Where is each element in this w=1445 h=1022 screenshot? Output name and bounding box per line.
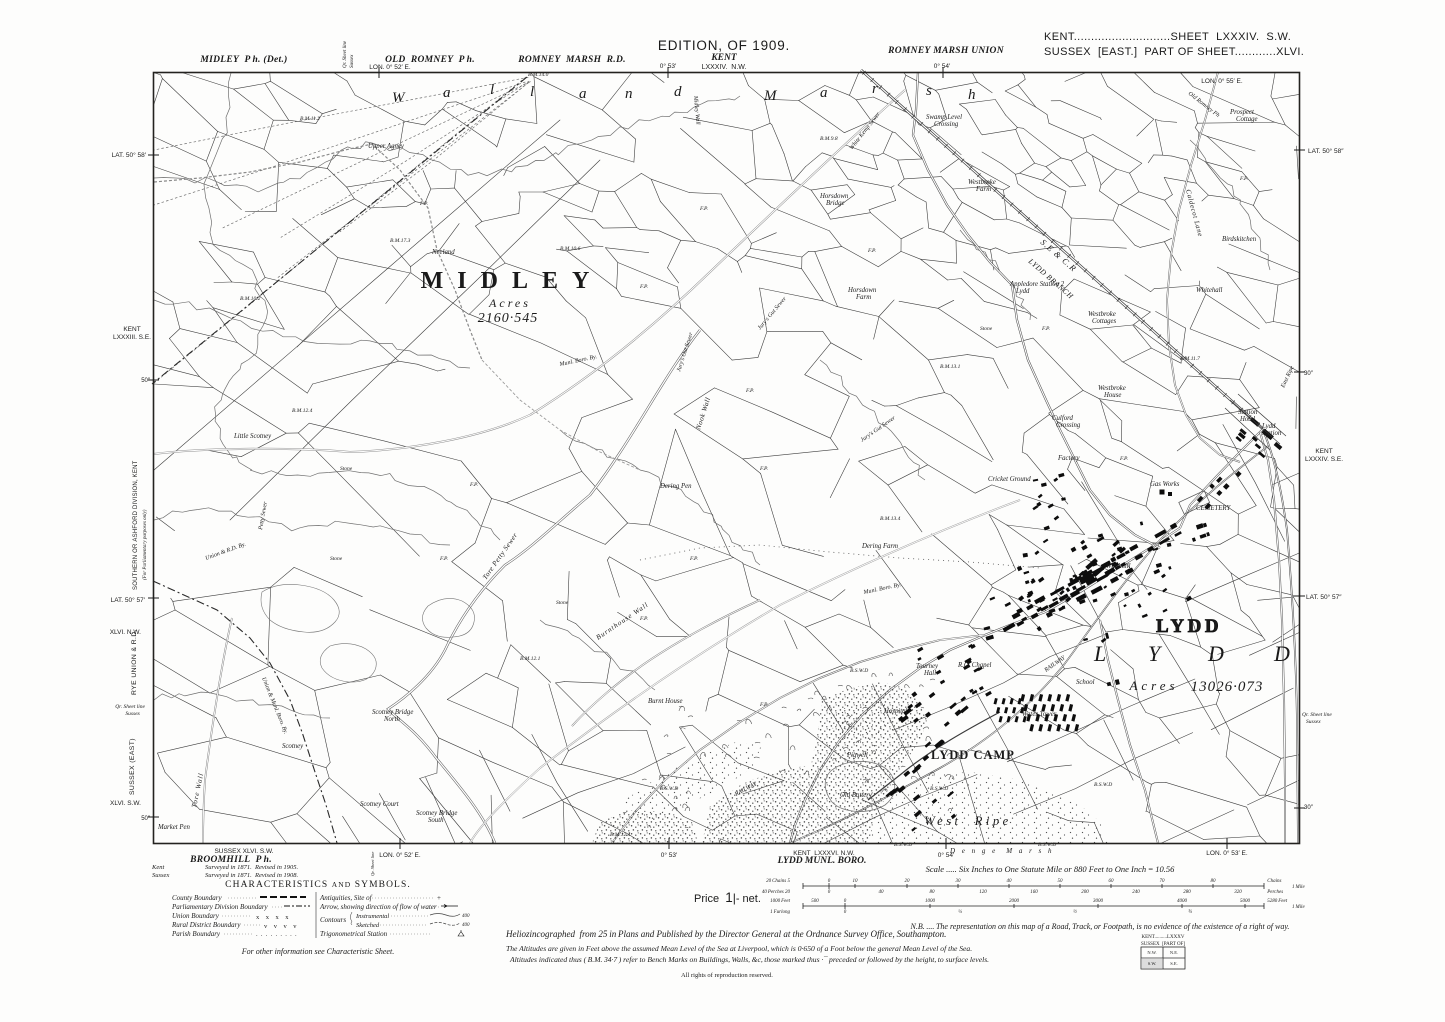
svg-text:F.P.: F.P. — [689, 556, 698, 562]
svg-text:30″: 30″ — [1304, 371, 1314, 377]
svg-text:Sussex: Sussex — [152, 872, 169, 879]
svg-text:MIDLEY: MIDLEY — [421, 268, 604, 294]
svg-text:For other information see Char: For other information see Characteristic… — [241, 947, 394, 956]
svg-text:LYDD CAMP: LYDD CAMP — [931, 748, 1015, 762]
svg-text:Prospect: Prospect — [1229, 109, 1255, 116]
svg-text:D: D — [1207, 641, 1224, 666]
svg-text:S.E.: S.E. — [1170, 961, 1178, 966]
svg-text:B.M.13.4: B.M.13.4 — [880, 515, 901, 522]
svg-text:60: 60 — [1109, 879, 1115, 884]
svg-text:Kent: Kent — [151, 864, 164, 871]
svg-text:B.M.12.4: B.M.12.4 — [610, 831, 631, 838]
svg-text:Sussex: Sussex — [1306, 719, 1321, 725]
svg-text:Union Boundary: Union Boundary — [172, 912, 220, 920]
svg-text:Trigonometrical Station: Trigonometrical Station — [320, 930, 388, 938]
svg-text:Cricket Ground: Cricket Ground — [988, 476, 1031, 483]
svg-text:Station: Station — [1238, 409, 1258, 416]
svg-text:Little Scotney: Little Scotney — [233, 433, 272, 440]
svg-text:SUSSEX [EAST.] PART OF SHEET: SUSSEX [EAST.] PART OF SHEET............… — [1044, 46, 1304, 58]
svg-text:1 Mile: 1 Mile — [1292, 905, 1305, 910]
svg-text:LYDD: LYDD — [1156, 616, 1222, 637]
svg-text:D e n g e M a r s h: D e n g e M a r s h — [949, 847, 1054, 855]
svg-text:B.S.W.D: B.S.W.D — [660, 786, 678, 792]
svg-text:Westbroke: Westbroke — [1088, 311, 1116, 318]
svg-text:Acres: Acres — [1128, 678, 1178, 693]
svg-text:B.M.11.2: B.M.11.2 — [300, 116, 320, 122]
svg-text:Parliamentary Division Boundar: Parliamentary Division Boundary — [171, 903, 269, 911]
svg-text:Stone: Stone — [330, 556, 343, 562]
svg-text:¾: ¾ — [1188, 910, 1192, 915]
svg-text:Sussex: Sussex — [350, 54, 355, 68]
svg-text:B.M.10.2: B.M.10.2 — [240, 296, 261, 302]
svg-text:Lydd: Lydd — [1261, 423, 1276, 430]
svg-text:MIDLEY P h. (Det.): MIDLEY P h. (Det.) — [199, 54, 287, 65]
svg-text:F.P.: F.P. — [759, 702, 768, 708]
svg-text:Perches: Perches — [1266, 890, 1283, 895]
svg-text:LAT. 50° 57″: LAT. 50° 57″ — [1306, 593, 1342, 601]
svg-text:13026·073: 13026·073 — [1191, 679, 1264, 695]
svg-text:KENT..........LXXXV: KENT..........LXXXV — [1142, 935, 1185, 940]
svg-text:Scotney Bridge: Scotney Bridge — [416, 810, 457, 817]
svg-text:h: h — [968, 87, 976, 103]
svg-text:Hall: Hall — [923, 670, 936, 677]
svg-text:M: M — [763, 88, 778, 104]
svg-text:Stone: Stone — [980, 326, 993, 332]
svg-text:B.M.12.1: B.M.12.1 — [520, 656, 541, 662]
svg-text:County Boundary: County Boundary — [172, 894, 222, 902]
svg-text:Price 1|- net.: Price 1|- net. — [694, 890, 761, 905]
svg-text:B.S.W.D: B.S.W.D — [850, 668, 868, 674]
svg-text:West Ripe: West Ripe — [924, 814, 1011, 828]
svg-text:Surveyed in 1871. Revised in: Surveyed in 1871. Revised in 1908. — [205, 872, 299, 879]
svg-text:Altitudes indicated thus ( B.M: Altitudes indicated thus ( B.M. 34·7 ) r… — [509, 955, 989, 964]
svg-text:Pigwell: Pigwell — [846, 752, 868, 759]
svg-text:Qr. Sheet line: Qr. Sheet line — [343, 40, 348, 68]
svg-text:a: a — [443, 85, 451, 101]
svg-text:D: D — [1273, 641, 1290, 666]
svg-text:South: South — [428, 817, 444, 824]
svg-text:0° 54′: 0° 54′ — [934, 62, 951, 70]
svg-text:Scotney Bridge: Scotney Bridge — [372, 709, 413, 716]
svg-text:F.P.: F.P. — [759, 466, 768, 472]
svg-text:Qr. Sheet line: Qr. Sheet line — [115, 704, 145, 710]
svg-text:Qr. Sheet line: Qr. Sheet line — [1302, 712, 1332, 718]
svg-text:LON. 0° 53′ E.: LON. 0° 53′ E. — [1206, 849, 1248, 857]
svg-text:B.S.W.D: B.S.W.D — [1094, 782, 1112, 788]
svg-text:1 Furlong: 1 Furlong — [770, 910, 790, 915]
svg-text:400: 400 — [462, 914, 470, 919]
svg-text:B.M.10.6: B.M.10.6 — [560, 246, 581, 252]
svg-text:400: 400 — [462, 923, 470, 928]
svg-text:Antiquities, Site of: Antiquities, Site of — [319, 894, 373, 902]
svg-text:Cottages: Cottages — [1092, 318, 1117, 325]
svg-text:LON. 0° 55′ E.: LON. 0° 55′ E. — [1201, 77, 1243, 85]
svg-text:LXXXIV. S.E.: LXXXIV. S.E. — [1305, 456, 1343, 463]
svg-text:SUSSEX [PART OF]: SUSSEX [PART OF] — [1141, 942, 1185, 947]
svg-text:Factory: Factory — [1057, 455, 1080, 462]
svg-text:North: North — [383, 716, 400, 723]
svg-text:x x x x: x x x x — [256, 914, 289, 921]
svg-text:F.P.: F.P. — [469, 482, 478, 488]
svg-text:All rights of reproduction res: All rights of reproduction reserved. — [681, 972, 773, 979]
svg-text:Sketched: Sketched — [356, 922, 380, 929]
svg-text:Tourney: Tourney — [916, 663, 939, 670]
svg-text:4000: 4000 — [1177, 899, 1188, 904]
svg-text:Contours: Contours — [320, 916, 346, 924]
svg-text:Surveyed in 1871. Revised in: Surveyed in 1871. Revised in 1905. — [205, 864, 299, 871]
svg-text:Crossing: Crossing — [934, 121, 959, 128]
svg-text:CEMETERY: CEMETERY — [1196, 505, 1231, 512]
svg-text:N.E.: N.E. — [1170, 950, 1178, 955]
svg-text:2000: 2000 — [1009, 899, 1020, 904]
svg-text:Bridge: Bridge — [826, 200, 845, 207]
svg-text:10: 10 — [853, 879, 859, 884]
svg-text:F.P.: F.P. — [1041, 326, 1050, 332]
svg-text:School: School — [1076, 679, 1095, 686]
svg-text:Heliozincographed from 25 in: Heliozincographed from 25 in Plans and P… — [505, 929, 946, 939]
svg-text:Acres: Acres — [488, 296, 531, 310]
svg-text:r: r — [872, 81, 878, 97]
svg-text:L: L — [1093, 641, 1106, 666]
svg-text:Birdskitchen: Birdskitchen — [1222, 236, 1257, 243]
svg-text:Horsdown: Horsdown — [847, 287, 877, 294]
svg-text:Parish Boundary: Parish Boundary — [171, 930, 221, 938]
svg-text:F.P.: F.P. — [639, 616, 648, 622]
svg-text:LAT. 50° 58″: LAT. 50° 58″ — [1308, 147, 1344, 155]
svg-text:Rural District Boundary: Rural District Boundary — [171, 921, 241, 929]
svg-text:30: 30 — [956, 879, 962, 884]
svg-text:LAT. 50° 57′: LAT. 50° 57′ — [111, 596, 146, 604]
svg-text:KENT: KENT — [1315, 448, 1332, 455]
svg-text:50: 50 — [1058, 879, 1064, 884]
svg-text:Upper Agney: Upper Agney — [368, 143, 405, 150]
svg-text:LON. 0° 52′ E.: LON. 0° 52′ E. — [379, 851, 421, 859]
svg-text:240: 240 — [1132, 890, 1140, 895]
svg-text:Gas Works: Gas Works — [1150, 481, 1180, 488]
svg-text:v v v v: v v v v — [264, 923, 297, 930]
svg-text:Stone: Stone — [556, 600, 569, 606]
svg-text:50″: 50″ — [141, 816, 151, 822]
svg-text:Westbroke: Westbroke — [968, 179, 996, 186]
svg-text:The Altitudes are given in Fee: The Altitudes are given in Feet above th… — [506, 944, 972, 953]
svg-text:Water Tower: Water Tower — [1022, 711, 1057, 718]
svg-text:LXXXIV. N.W.: LXXXIV. N.W. — [702, 64, 747, 71]
svg-text:RYE UNION & R.D.: RYE UNION & R.D. — [131, 629, 138, 695]
svg-text:0° 53′: 0° 53′ — [661, 851, 678, 859]
svg-text:70: 70 — [1160, 879, 1166, 884]
svg-text:EDITION, OF 1909.: EDITION, OF 1909. — [658, 38, 790, 53]
svg-text:R.C. Chapel: R.C. Chapel — [957, 662, 992, 669]
svg-text:Scotney Court: Scotney Court — [360, 801, 400, 808]
svg-text:SUSSEX (EAST): SUSSEX (EAST) — [129, 738, 136, 795]
svg-text:Crossing: Crossing — [1056, 422, 1081, 429]
svg-text:Neeland: Neeland — [431, 249, 455, 256]
svg-text:ROMNEY MARSH R.D.: ROMNEY MARSH R.D. — [517, 55, 626, 65]
svg-text:F.P.: F.P. — [745, 388, 754, 394]
svg-text:120: 120 — [979, 890, 987, 895]
svg-text:F.P.: F.P. — [1239, 176, 1248, 182]
svg-text:KENT: KENT — [710, 53, 738, 63]
svg-text:Farm: Farm — [855, 294, 871, 301]
svg-text:40: 40 — [1007, 879, 1013, 884]
svg-text:a: a — [820, 85, 828, 101]
svg-text:LYDD MUNL. BORO.: LYDD MUNL. BORO. — [777, 856, 867, 866]
svg-text:ROMNEY MARSH UNION: ROMNEY MARSH UNION — [887, 46, 1005, 56]
svg-text:s: s — [926, 83, 932, 99]
svg-text:0° 53′: 0° 53′ — [660, 62, 677, 70]
svg-text:Whitehall: Whitehall — [1196, 287, 1223, 294]
svg-text:Dering Pen: Dering Pen — [659, 483, 692, 490]
svg-text:320: 320 — [1234, 890, 1242, 895]
svg-text:F.P.: F.P. — [419, 201, 428, 207]
svg-text:Scotney: Scotney — [282, 743, 304, 750]
svg-text:F.P.: F.P. — [1119, 456, 1128, 462]
svg-text:. . . . . . . . .: . . . . . . . . . — [256, 931, 297, 938]
svg-text:S.W.: S.W. — [1148, 961, 1157, 966]
svg-text:n: n — [625, 86, 633, 102]
svg-text:House: House — [1103, 392, 1121, 399]
svg-text:B.M.17.3: B.M.17.3 — [390, 238, 411, 244]
svg-text:Culford: Culford — [1052, 415, 1073, 422]
svg-text:5000: 5000 — [1240, 899, 1251, 904]
svg-text:F.P.: F.P. — [867, 248, 876, 254]
svg-text:B.M.11.7: B.M.11.7 — [1180, 356, 1200, 362]
svg-text:Farm: Farm — [975, 186, 991, 193]
svg-text:B.S.W.D: B.S.W.D — [930, 786, 948, 792]
svg-text:20: 20 — [905, 879, 911, 884]
svg-text:KENT: KENT — [123, 326, 140, 333]
svg-text:50″: 50″ — [141, 378, 151, 384]
svg-text:Instrumental: Instrumental — [355, 913, 389, 920]
svg-text:200: 200 — [1081, 890, 1089, 895]
svg-text:280: 280 — [1183, 890, 1191, 895]
svg-text:40: 40 — [879, 890, 885, 895]
svg-text:30″: 30″ — [1304, 805, 1314, 811]
svg-text:N.W.: N.W. — [1147, 950, 1156, 955]
svg-text:Chains: Chains — [1266, 879, 1281, 884]
svg-text:SUSSEX XLVI. S.W.: SUSSEX XLVI. S.W. — [214, 848, 273, 855]
svg-text:F.P.: F.P. — [699, 206, 708, 212]
svg-text:Market Pen: Market Pen — [157, 824, 190, 831]
svg-text:B.M.9.8: B.M.9.8 — [820, 136, 838, 142]
svg-text:Old Battery: Old Battery — [840, 792, 873, 799]
svg-text:¼: ¼ — [958, 910, 962, 915]
svg-text:1000 Feet: 1000 Feet — [770, 899, 790, 904]
svg-text:Lydd: Lydd — [1015, 288, 1030, 295]
svg-text:l: l — [530, 84, 534, 100]
svg-text:XLVI. S.W.: XLVI. S.W. — [110, 800, 141, 807]
svg-text:Windmill: Windmill — [1106, 563, 1131, 570]
svg-text:LXXXIII. S.E.: LXXXIII. S.E. — [113, 334, 151, 341]
svg-text:3000: 3000 — [1093, 899, 1104, 904]
svg-text:W: W — [392, 90, 406, 106]
svg-text:(For Parliamentary purposes on: (For Parliamentary purposes only) — [143, 509, 148, 580]
svg-text:LAT. 50° 58′: LAT. 50° 58′ — [112, 151, 147, 159]
svg-text:Burnt House: Burnt House — [648, 698, 683, 705]
svg-text:Westbroke: Westbroke — [1098, 385, 1126, 392]
svg-text:Qr. Sheet line: Qr. Sheet line — [370, 852, 375, 876]
svg-text:1000: 1000 — [925, 899, 936, 904]
svg-text:80: 80 — [930, 890, 936, 895]
svg-text:Hospital: Hospital — [883, 708, 908, 715]
svg-text:F.P.: F.P. — [639, 284, 648, 290]
svg-text:160: 160 — [1030, 890, 1038, 895]
svg-text:1 Mile: 1 Mile — [1292, 885, 1305, 890]
svg-text:500: 500 — [811, 899, 819, 904]
svg-text:+: + — [437, 894, 441, 902]
svg-text:40 Perches 20: 40 Perches 20 — [762, 890, 791, 895]
svg-text:½: ½ — [1073, 910, 1077, 915]
svg-text:l: l — [490, 82, 494, 98]
svg-text:Horsdown: Horsdown — [819, 193, 849, 200]
svg-text:N.B. .... The representation o: N.B. .... The representation on this map… — [910, 922, 1290, 931]
svg-text:Scale ..... Six Inches to One: Scale ..... Six Inches to One Statute Mi… — [926, 864, 1175, 874]
svg-text:B.M.12.4: B.M.12.4 — [292, 407, 313, 414]
svg-text:B.M.13.1: B.M.13.1 — [940, 364, 961, 370]
svg-text:Arrow, showing direction of fl: Arrow, showing direction of flow of wate… — [319, 903, 437, 911]
svg-text:a: a — [579, 86, 587, 102]
svg-text:SOUTHERN OR ASHFORD DIVISION,: SOUTHERN OR ASHFORD DIVISION, KENT — [133, 460, 139, 590]
svg-text:Hotel: Hotel — [1239, 416, 1255, 423]
svg-text:Stone: Stone — [340, 466, 353, 472]
svg-text:CHARACTERISTICS AND SYMBOLS.: CHARACTERISTICS AND SYMBOLS. — [225, 880, 411, 890]
svg-text:Sussex: Sussex — [125, 711, 140, 717]
svg-text:KENT..........................: KENT............................SHEET LX… — [1044, 31, 1291, 43]
svg-text:80: 80 — [1211, 879, 1217, 884]
svg-text:d: d — [674, 84, 682, 100]
svg-text:2160·545: 2160·545 — [478, 311, 539, 326]
svg-text:5280 Feet: 5280 Feet — [1266, 899, 1288, 904]
svg-text:Cottage: Cottage — [1236, 116, 1258, 123]
svg-text:LON. 0° 52′ E.: LON. 0° 52′ E. — [369, 63, 411, 71]
svg-text:Dering Farm: Dering Farm — [861, 543, 898, 550]
svg-text:20 Chains 5: 20 Chains 5 — [766, 879, 790, 884]
svg-text:F.P.: F.P. — [439, 556, 448, 562]
svg-text:Station: Station — [1262, 430, 1282, 437]
svg-text:Swamp Level: Swamp Level — [926, 114, 962, 121]
